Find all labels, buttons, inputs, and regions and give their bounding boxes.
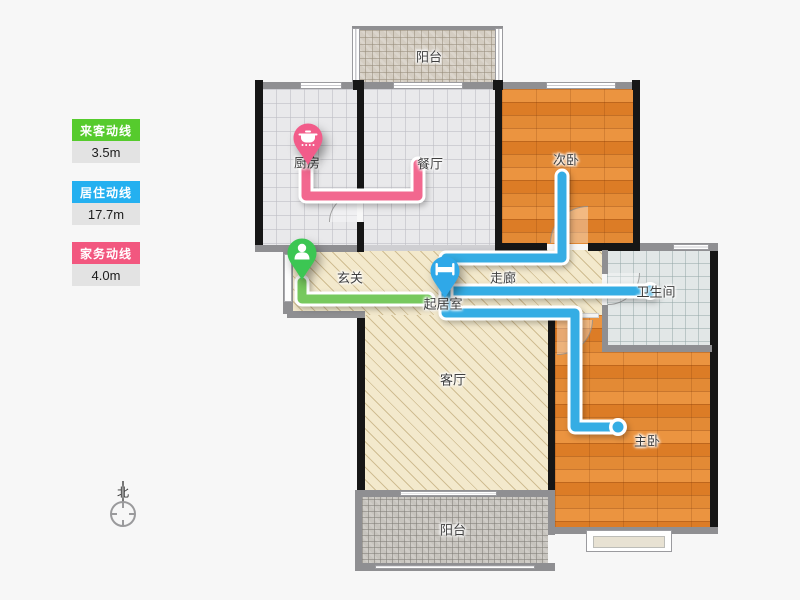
route-living-c-casing: [446, 276, 618, 427]
room-label-balcony-bottom: 阳台: [440, 520, 466, 539]
route-chores-casing: [306, 164, 418, 196]
room-label-master: 主卧: [634, 431, 660, 450]
floorplan-stage: 来客动线 3.5m 居住动线 17.7m 家务动线 4.0m: [0, 0, 800, 600]
room-label-bathroom: 卫生间: [636, 282, 675, 301]
room-label-balcony-top: 阳台: [416, 47, 442, 66]
kitchen-pin[interactable]: [292, 122, 324, 166]
room-label-bedroom2: 次卧: [553, 150, 579, 169]
room-label-dining: 餐厅: [417, 154, 443, 173]
route-living-a-line: [446, 176, 562, 276]
kitchen-pin-shape: [294, 124, 323, 166]
living-pin-shape: [431, 257, 460, 299]
route-visitor-line: [302, 282, 428, 299]
route-lines-layer: [0, 0, 800, 600]
living-pin[interactable]: [429, 255, 461, 299]
route-living-c-line: [446, 276, 618, 427]
room-label-living: 客厅: [440, 370, 466, 389]
entry-pin[interactable]: [286, 237, 318, 281]
route-end-dot-master: [613, 422, 624, 433]
room-label-entry: 玄关: [337, 268, 363, 287]
room-label-corridor: 走廊: [490, 268, 516, 287]
